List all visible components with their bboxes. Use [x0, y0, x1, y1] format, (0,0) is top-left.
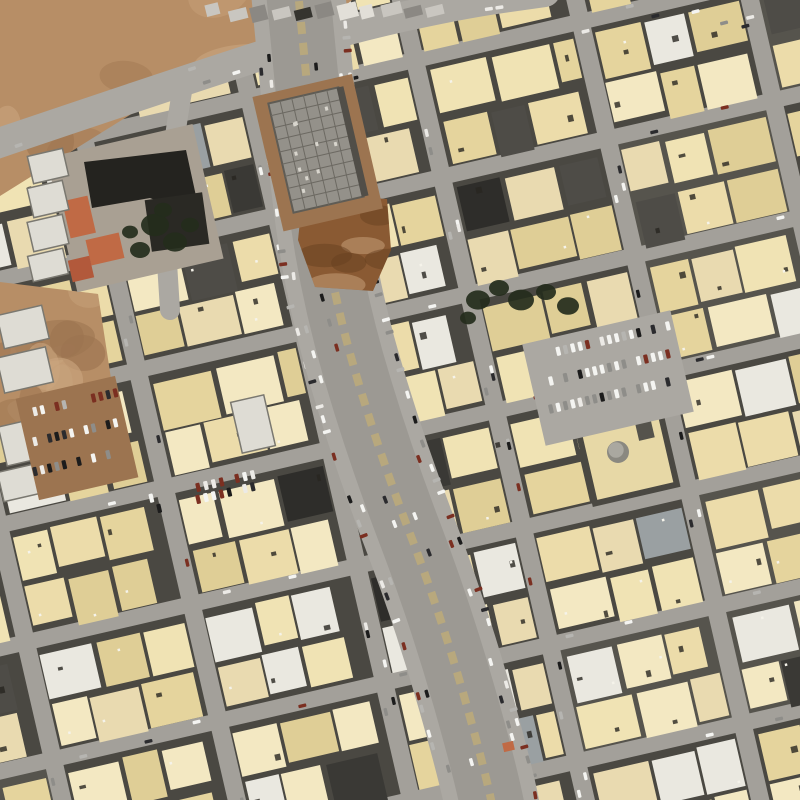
- car: [343, 21, 347, 29]
- tree: [460, 312, 476, 325]
- car: [314, 62, 318, 70]
- tree: [489, 280, 509, 296]
- car: [344, 48, 352, 52]
- tree: [181, 218, 199, 232]
- tree: [508, 290, 534, 311]
- tree: [536, 284, 556, 300]
- satellite-map-viewport[interactable]: [0, 0, 800, 800]
- tree: [122, 226, 138, 239]
- tree: [130, 242, 150, 258]
- car: [269, 80, 273, 88]
- tree: [163, 232, 187, 251]
- car: [267, 54, 271, 62]
- satellite-imagery: [0, 0, 800, 800]
- car: [342, 36, 350, 40]
- car: [259, 68, 263, 76]
- tree: [154, 203, 172, 217]
- tree: [466, 290, 490, 309]
- mosque-dome-highlight: [608, 442, 623, 457]
- tree: [557, 297, 579, 315]
- tree: [141, 214, 169, 236]
